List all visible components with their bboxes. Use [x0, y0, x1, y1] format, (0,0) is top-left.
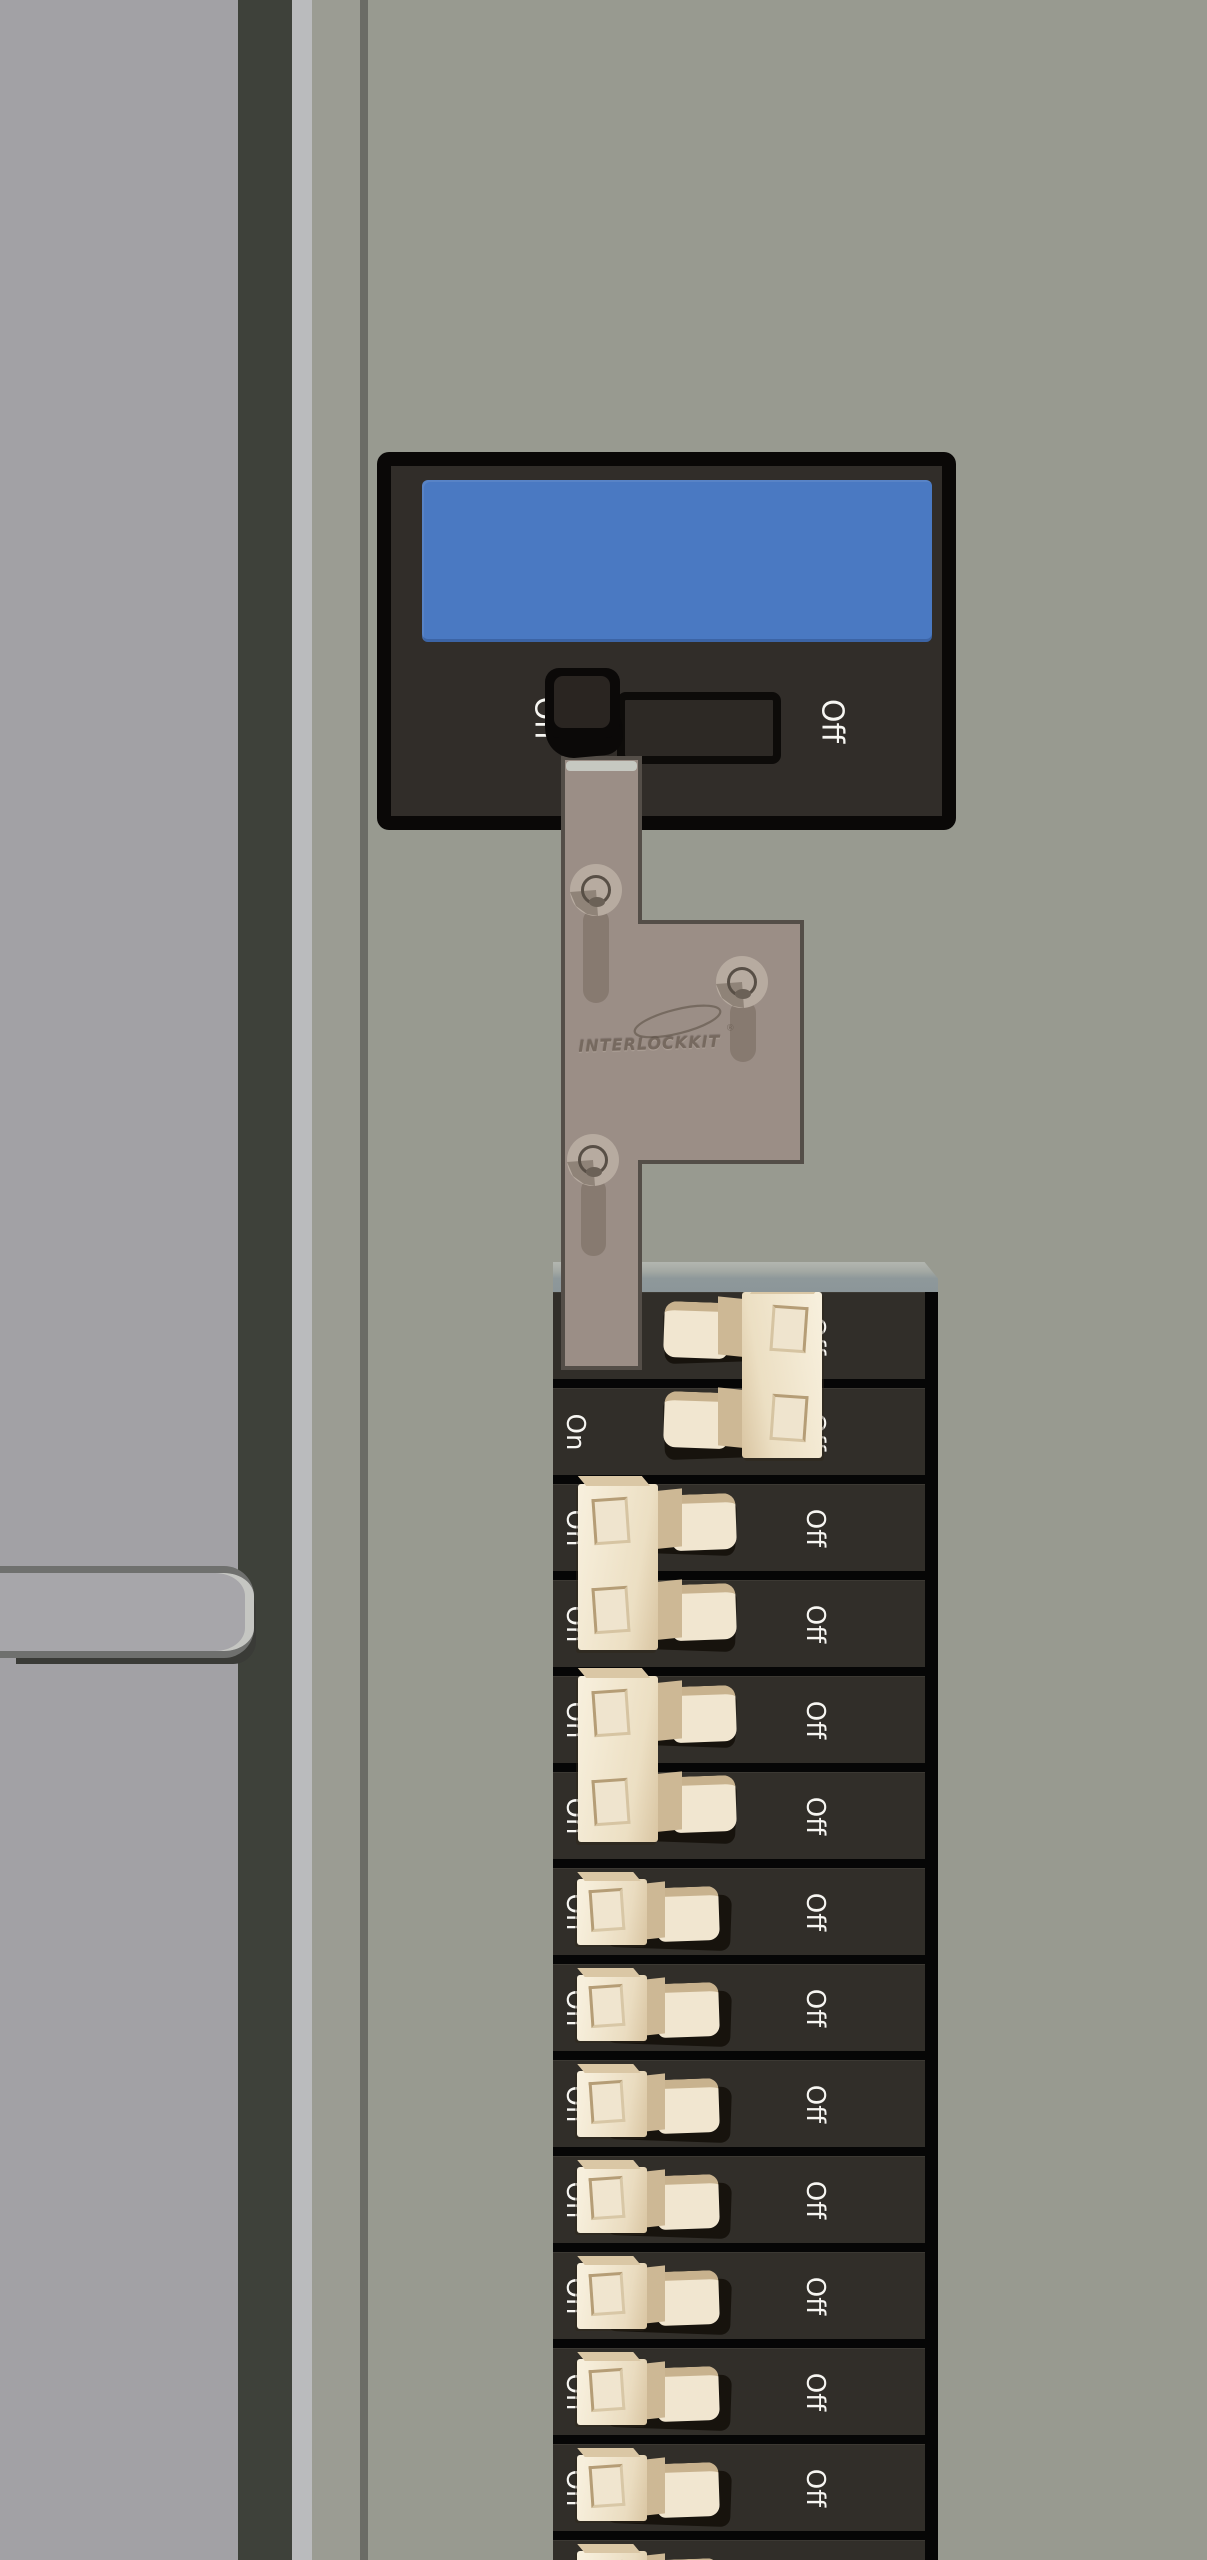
door-edge-highlight	[292, 0, 312, 2560]
handle-paddle	[656, 2366, 720, 2422]
breaker-handle-row-8[interactable]	[577, 1973, 729, 2043]
adjust-slot	[581, 1178, 606, 1256]
off-label: Off	[800, 2469, 830, 2507]
interlock-logo: INTERLOCKKIT ®	[573, 1001, 750, 1071]
main-off-label: Off	[815, 699, 850, 743]
adjust-slot	[583, 908, 609, 1003]
breaker-handle-row-11[interactable]	[577, 2261, 729, 2331]
main-breaker-label	[422, 480, 932, 642]
off-label: Off	[800, 1701, 830, 1739]
handle-paddle	[656, 2078, 720, 2134]
on-label: On	[560, 1414, 590, 1451]
screw[interactable]	[567, 1134, 619, 1186]
door-edge-shadow	[238, 0, 292, 2560]
handle-paddle	[656, 1982, 720, 2038]
off-label: Off	[800, 2277, 830, 2315]
off-label: Off	[800, 1893, 830, 1931]
breaker-handle-rows-5-6[interactable]	[578, 1676, 742, 1846]
panel-door	[0, 0, 238, 2560]
breaker-handle-row-10[interactable]	[577, 2165, 729, 2235]
off-label: Off	[800, 2373, 830, 2411]
handle-paddle	[656, 2462, 720, 2518]
breaker-handle-row-12[interactable]	[577, 2357, 729, 2427]
handle-indent	[591, 1689, 630, 1737]
handle-indent	[591, 1778, 630, 1826]
breaker-row-12: On Off	[553, 2348, 925, 2435]
off-label: Off	[800, 1605, 830, 1643]
panel-side-edge	[360, 0, 368, 2560]
handle-indent	[589, 2272, 626, 2316]
handle-indent	[591, 1497, 630, 1545]
breaker-row-7: On Off	[553, 1868, 925, 1955]
toggle-handle-face	[554, 676, 610, 728]
handle-paddle	[656, 1886, 720, 1942]
breaker-row-13: On Off	[553, 2444, 925, 2531]
off-label: Off	[800, 2181, 830, 2219]
off-label: Off	[800, 1509, 830, 1547]
breaker-column: On Off On Off On Off On Off On Off On Of…	[553, 1262, 938, 2560]
breaker-row-14: On Off	[553, 2540, 925, 2560]
handle-indent	[589, 1984, 626, 2028]
registered-mark: ®	[726, 1023, 735, 1033]
breaker-row-10: On Off	[553, 2156, 925, 2243]
handle-body	[577, 2551, 647, 2560]
handle-indent	[589, 1888, 626, 1932]
handle-indent	[589, 2080, 626, 2124]
handle-indent	[589, 2368, 626, 2412]
breaker-handle-rows-3-4[interactable]	[578, 1484, 742, 1654]
handle-indent	[769, 1394, 808, 1442]
breaker-row-8: On Off	[553, 1964, 925, 2051]
handle-paddle	[656, 2174, 720, 2230]
breaker-rows: On Off On Off On Off On Off On Off On Of…	[553, 1292, 938, 2560]
off-label: Off	[800, 1989, 830, 2027]
main-breaker-toggle[interactable]	[545, 665, 625, 761]
panel-side-band	[312, 0, 360, 2560]
breaker-row-11: On Off	[553, 2252, 925, 2339]
door-handle[interactable]	[0, 1566, 254, 1658]
screw[interactable]	[570, 864, 622, 916]
handle-indent	[591, 1586, 630, 1634]
plate-top-highlight	[566, 761, 637, 771]
handle-indent	[589, 2176, 626, 2220]
breaker-handle-row-14[interactable]	[577, 2549, 729, 2560]
off-label: Off	[800, 2085, 830, 2123]
breaker-panel-scene: On Off On Off On Off On Off On Off On Of…	[0, 0, 1207, 2560]
breaker-row-9: On Off	[553, 2060, 925, 2147]
off-label: Off	[800, 1797, 830, 1835]
logo-text: INTERLOCKKIT	[578, 1032, 721, 1056]
handle-paddle	[656, 2270, 720, 2326]
breaker-handle-row-9[interactable]	[577, 2069, 729, 2139]
handle-indent	[589, 2464, 626, 2508]
breaker-handle-row-7[interactable]	[577, 1877, 729, 1947]
breaker-handle-row-13[interactable]	[577, 2453, 729, 2523]
